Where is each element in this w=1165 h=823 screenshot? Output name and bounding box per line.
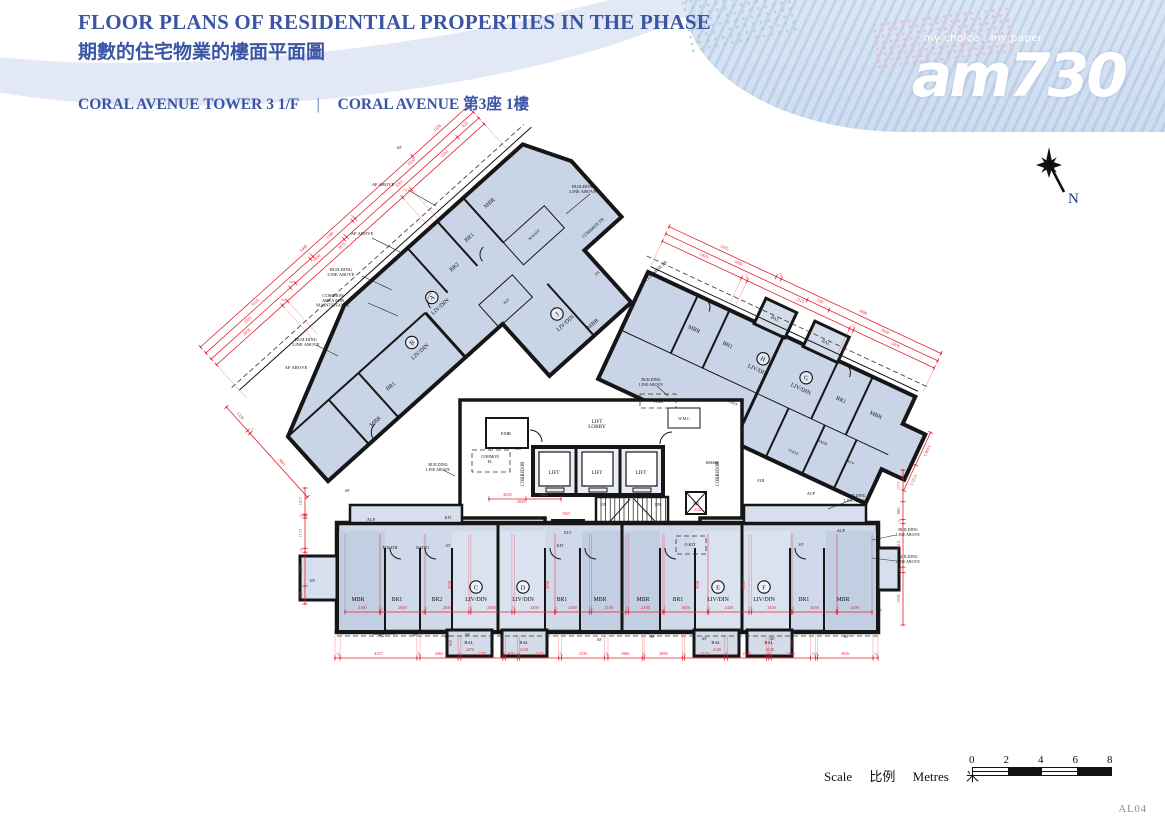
room-label: ELR bbox=[757, 479, 765, 483]
dimension-value: 2450 bbox=[725, 605, 734, 610]
dimension-value: 2125 bbox=[743, 651, 752, 656]
room-label: ACP bbox=[837, 528, 846, 533]
annotation: BUILDINGLINE ABOVE bbox=[327, 267, 354, 277]
tower-name-en: CORAL AVENUE TOWER 3 1/F bbox=[78, 96, 299, 113]
dimension-value: 1310 bbox=[298, 565, 303, 574]
room-label: O.KIT bbox=[684, 542, 695, 547]
dimension-value: 2650 bbox=[810, 605, 819, 610]
annotation: BUILDINGLINE ABOVE bbox=[896, 527, 920, 537]
dimension-text: 2120 bbox=[713, 647, 721, 652]
dimension-value: 1173 bbox=[896, 482, 901, 490]
dimension-value: 1017 bbox=[298, 496, 303, 505]
page-title-zh: 期數的住宅物業的樓面平面圖 bbox=[78, 37, 711, 64]
dimension-value: 3016 bbox=[841, 651, 850, 656]
dimension-value: 75 bbox=[350, 214, 354, 219]
dimension-value: 2050 bbox=[568, 605, 577, 610]
unit-letter: F bbox=[762, 584, 766, 591]
dimension-value: 3450 bbox=[734, 259, 744, 267]
annotation: BUILDINGLINE ABOVE bbox=[292, 337, 319, 347]
dimension-text: 3150 bbox=[741, 581, 746, 589]
dimension-value: 700 bbox=[298, 592, 303, 598]
annotation: AF bbox=[396, 145, 402, 150]
dimension-value: 3690 bbox=[858, 308, 868, 316]
dimension-value: 2650 bbox=[880, 327, 890, 335]
phase-name-en: CORAL AVENUE bbox=[338, 96, 460, 113]
annotation: AF bbox=[701, 636, 707, 641]
room-label: KIT bbox=[557, 543, 564, 548]
north-compass: N bbox=[1033, 147, 1079, 207]
room-label: ACP bbox=[367, 517, 376, 522]
dimension-value: 2100 bbox=[850, 605, 859, 610]
annotation: AF bbox=[769, 636, 775, 641]
room-label: EMR bbox=[501, 431, 512, 436]
subtitle-separator: | bbox=[317, 96, 320, 113]
dimension-value: 2100 bbox=[641, 605, 650, 610]
annotation: BUILDINGLINE ABOVE bbox=[896, 554, 920, 564]
dimension-value: 150 bbox=[250, 427, 255, 433]
lift-shaft bbox=[626, 452, 657, 486]
room-label: VOID bbox=[653, 399, 663, 404]
dimension-value: 2275 bbox=[478, 651, 487, 656]
scale-tick: 8 bbox=[1107, 754, 1113, 766]
scale-tick: 0 bbox=[969, 754, 975, 766]
dimension-value: 2650 bbox=[398, 605, 407, 610]
annotation: AF bbox=[444, 634, 450, 639]
annotation: AF bbox=[344, 488, 350, 493]
room-label: KIT bbox=[445, 515, 452, 520]
dimension-value: 2475 bbox=[720, 243, 730, 251]
lift-shaft bbox=[539, 452, 570, 486]
dimension-value: 4157 bbox=[374, 651, 383, 656]
scale-word-en: Scale bbox=[824, 769, 852, 784]
dimension-text: 2128 bbox=[694, 507, 702, 512]
room-label: LIV/DIN bbox=[465, 597, 487, 603]
scale-word-zh: 比例 bbox=[869, 769, 895, 784]
page-title-en: FLOOR PLANS OF RESIDENTIAL PROPERTIES IN… bbox=[78, 10, 711, 35]
dimension-value: 150 bbox=[896, 518, 902, 524]
room-label: DH bbox=[515, 447, 521, 451]
scale-tick-labels: 02468 bbox=[972, 754, 1112, 767]
room-label: LIFT bbox=[592, 470, 604, 476]
annotation: AF ABOVE bbox=[351, 231, 374, 236]
scale-tick: 6 bbox=[1073, 754, 1079, 766]
room-label: BR1 bbox=[557, 597, 568, 603]
annotation: AF bbox=[464, 632, 470, 637]
room-label: RS&MR bbox=[706, 461, 719, 465]
annotation: AF ABOVE bbox=[373, 631, 396, 636]
annotation: BUILDINGLINE ABOVE bbox=[569, 184, 596, 194]
annotation: AF bbox=[596, 637, 602, 642]
scale-ruler: 02468 bbox=[972, 754, 1112, 776]
dimension-chain: 193820016101506601173 bbox=[896, 469, 906, 626]
dimension-value: 270 bbox=[873, 651, 879, 657]
dimension-text: 3150 bbox=[695, 581, 700, 589]
annotation: AF bbox=[333, 629, 339, 634]
dimension-value: 118 bbox=[779, 272, 784, 278]
dimension-value: 2175 bbox=[700, 651, 709, 656]
room-label: W.M.C bbox=[678, 416, 690, 421]
dimension-value: 150 bbox=[298, 546, 304, 552]
dimension-value: 1173 bbox=[298, 529, 303, 537]
room-label: LIFT bbox=[636, 470, 648, 476]
dimension-value: 2125 bbox=[535, 651, 544, 656]
dimension-value: 2450 bbox=[767, 605, 776, 610]
annotation: AF bbox=[876, 608, 882, 613]
room-label: DN bbox=[655, 502, 661, 507]
dimension-text: 3150 bbox=[447, 581, 452, 589]
dimension-value: 2100 bbox=[604, 605, 613, 610]
dimension-value: 2470 bbox=[891, 341, 901, 349]
room-label: ST bbox=[446, 543, 451, 548]
annotation: BUILDINGLINE ABOVE bbox=[844, 493, 868, 503]
dimension-value: 150 bbox=[288, 280, 294, 285]
scale-tick: 4 bbox=[1038, 754, 1044, 766]
room-label: BR1 bbox=[799, 597, 810, 603]
room-label: MBR bbox=[837, 597, 850, 603]
room-label: ACP bbox=[807, 491, 816, 496]
annotation: AF ABOVE bbox=[285, 365, 308, 370]
page-header: FLOOR PLANS OF RESIDENTIAL PROPERTIES IN… bbox=[78, 10, 711, 64]
entry-stub bbox=[300, 556, 337, 600]
dimension-text: 850 bbox=[790, 640, 795, 646]
dimension-value: 660 bbox=[896, 507, 901, 513]
room-label: BAL bbox=[711, 640, 720, 645]
dimension-text: 2470 bbox=[466, 647, 474, 652]
unit-letter: D bbox=[521, 584, 526, 591]
dimension-value: 625 bbox=[461, 120, 469, 128]
dimension-value: 2335 bbox=[579, 651, 588, 656]
room-label: M.BATH bbox=[382, 545, 397, 550]
room-label: ELV bbox=[564, 530, 572, 535]
room-label: LIV/DIN bbox=[753, 597, 775, 603]
dimension-value: 150 bbox=[280, 297, 286, 302]
room-label: BR1 bbox=[673, 597, 684, 603]
unit-letter: E bbox=[716, 584, 720, 591]
tower-subtitle: CORAL AVENUE TOWER 3 1/F | CORAL AVENUE … bbox=[78, 92, 529, 114]
dimension-value: 2500 bbox=[487, 605, 496, 610]
room-label: LIV/DIN bbox=[707, 597, 729, 603]
scale-bar: Scale 比例 Metres 米 02468 bbox=[824, 766, 993, 785]
room-label: BAL bbox=[519, 640, 528, 645]
dimension-text: 850 bbox=[448, 640, 453, 646]
dimension-value: 168 bbox=[416, 651, 422, 657]
annotation: BUILDINGLINE ABOVE bbox=[639, 377, 663, 387]
tower-name-zh: 第3座 1樓 bbox=[463, 96, 529, 113]
dimension-chain: 2784157168206515022751256501252125150233… bbox=[334, 636, 879, 661]
dimension-value: 2125 bbox=[786, 651, 795, 656]
room-label: BR2 bbox=[432, 597, 443, 603]
room-label: MBR bbox=[637, 597, 650, 603]
dimension-value: 1860 bbox=[621, 651, 630, 656]
dimension-value: 2065 bbox=[435, 651, 444, 656]
dimension-value: 1938 bbox=[896, 594, 901, 603]
bath-band-right bbox=[744, 505, 866, 523]
dimension-text: 3150 bbox=[545, 581, 550, 589]
dimension-value: 275 bbox=[402, 188, 408, 193]
dimension-value: 2080 bbox=[659, 651, 668, 656]
dimension-value: 180 bbox=[604, 651, 610, 657]
dimension-value: 278 bbox=[335, 651, 341, 657]
dimension-value: 2100 bbox=[358, 605, 367, 610]
room-label: MBR bbox=[594, 597, 607, 603]
room-label: BATH 1 bbox=[416, 545, 429, 550]
dimension-text: 2035 bbox=[517, 499, 525, 504]
dimension-value: 2650 bbox=[443, 605, 452, 610]
scale-ruler-bar bbox=[972, 767, 1112, 776]
metres-word-en: Metres bbox=[913, 769, 949, 784]
room-label: BAL bbox=[464, 640, 473, 645]
dimension-value: 650 bbox=[508, 651, 514, 656]
annotation: AF bbox=[843, 634, 849, 639]
room-label: UP bbox=[309, 578, 315, 583]
dimension-text: 2120 bbox=[520, 647, 528, 652]
annotation: AF bbox=[412, 632, 418, 637]
dimension-value: 75 bbox=[308, 252, 312, 257]
dimension-value: 2035 bbox=[503, 492, 512, 497]
room-label: MBR bbox=[352, 597, 365, 603]
dimension-value: 1610 bbox=[896, 541, 901, 550]
dimension-text: 1925 bbox=[562, 511, 570, 516]
dimension-value: 2420 bbox=[699, 251, 709, 259]
dimension-value: 2650 bbox=[682, 605, 691, 610]
north-label: N bbox=[1068, 191, 1079, 207]
room-label: BR1 bbox=[392, 597, 403, 603]
room-label: UP bbox=[600, 502, 606, 507]
lift-shaft bbox=[582, 452, 613, 486]
unit-letter: C bbox=[474, 584, 479, 591]
dimension-value: 3125 bbox=[795, 296, 805, 304]
room-label: ST bbox=[799, 542, 804, 547]
room-label: PD bbox=[693, 501, 699, 506]
dimension-value: 1925 bbox=[539, 492, 548, 497]
annotation: BUILDINGLINE ABOVE bbox=[426, 462, 450, 472]
dimension-value: 75 bbox=[341, 233, 345, 238]
annotation: AF bbox=[649, 634, 655, 639]
dimension-value: 125 bbox=[851, 324, 856, 330]
annotation: AF ABOVE bbox=[372, 182, 395, 187]
scale-tick: 2 bbox=[1004, 754, 1010, 766]
floor-plan: N ALIV/DINMBRBR1BR2M.BATHKITBLIV/DINBR1M… bbox=[0, 0, 1165, 823]
room-label: LIV/DIN bbox=[512, 597, 534, 603]
room-label: LIFT bbox=[549, 470, 561, 476]
brochure-page: my choice : my paper am730 FLOOR PLANS O… bbox=[0, 0, 1165, 823]
room-label: CORRIDOR bbox=[521, 461, 526, 487]
dimension-value: 2450 bbox=[530, 605, 539, 610]
dimension-value: 528 bbox=[816, 297, 824, 304]
